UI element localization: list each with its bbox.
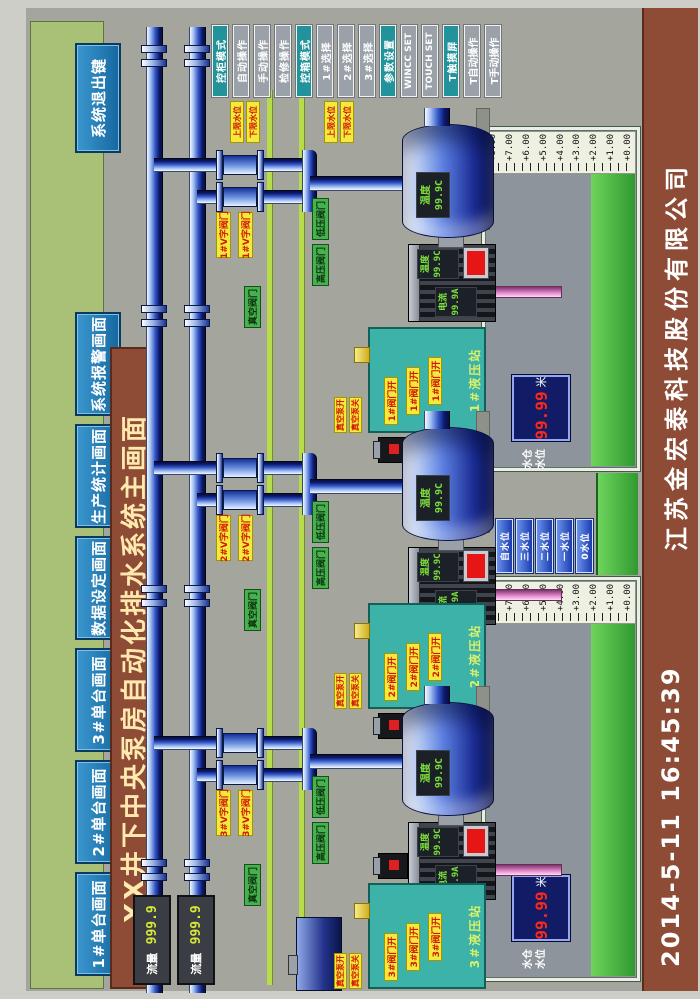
pump-inlet-pipe (310, 176, 410, 191)
pipe-flange (184, 859, 210, 867)
tank-level-display-right: 99.99米 (512, 375, 570, 441)
suction-pipe (490, 286, 562, 298)
nav-bar: 1#单台画面 2#单台画面 3#单台画面 数据设定画面 生产统计画面 系统报警画… (30, 21, 104, 989)
scale-tick-label: +2.00 (590, 583, 599, 611)
valve-label: 高压阀门 (312, 547, 329, 589)
valve-flange (257, 760, 264, 790)
station-title: 3#液压站 (466, 885, 483, 987)
valve-label: 真空阀门 (244, 864, 261, 906)
tank-channel (596, 473, 638, 575)
scale-tick-label: +3.00 (573, 133, 582, 161)
valve-flange (257, 728, 264, 758)
level-scale: +8.00+7.00+6.00+5.00+4.00+3.00+2.00+1.00… (487, 132, 635, 174)
suction-pipe (490, 864, 562, 876)
scale-tick-label: +4.00 (557, 133, 566, 161)
valve-body (223, 490, 257, 510)
motor-temp-gauge: 温度99.9C (417, 249, 459, 279)
valve-body (223, 765, 257, 785)
station-side-tag: 真空泵关 (349, 397, 362, 433)
pipe-flange (141, 585, 167, 593)
hydraulic-station-panel: 3#阀门开 3#阀门开 3#阀门开 3#液压站 (368, 883, 486, 989)
valve-flange (216, 728, 223, 758)
pipe-flange (184, 585, 210, 593)
motor-temp-gauge: 温度99.9C (417, 552, 459, 582)
valve-flange (216, 485, 223, 515)
level-button[interactable]: 自水位 (496, 519, 513, 573)
tank-level-display-left: 99.99米 (512, 875, 570, 941)
motor-temp-gauge: 温度99.9C (417, 827, 459, 857)
alarm-level-tag: 上限水位 (324, 101, 338, 143)
motor-alarm-indicator (463, 550, 489, 582)
level-button[interactable]: 三水位 (516, 519, 533, 573)
tank-level-caption: 水仓水位 (522, 943, 548, 969)
mode-button[interactable]: TOUCH SET (422, 25, 438, 97)
pump-outlet-stub (424, 686, 450, 704)
valve-label: 高压阀门 (312, 244, 329, 286)
valve-flange (257, 150, 264, 180)
level-button[interactable]: 二水位 (536, 519, 553, 573)
flow-value: 999.9 (145, 905, 160, 944)
pipe-flange (141, 599, 167, 607)
pipe-flange (141, 859, 167, 867)
pump-inlet-pipe (310, 479, 410, 494)
pipe-flange (184, 873, 210, 881)
pipe-flange (141, 873, 167, 881)
motor: 电流99.9A 温度99.9C (408, 244, 496, 322)
valve-tag: 2#V字阀门 (238, 515, 253, 561)
station-side-tag: 真空泵开 (334, 673, 347, 709)
tank-level-caption: 水仓水位 (522, 443, 548, 469)
station-side-tag: 真空泵开 (334, 397, 347, 433)
valve-flange (216, 760, 223, 790)
flow-label: 流量 (144, 953, 160, 975)
valve-flange (216, 182, 223, 212)
level-value: 99.99 (532, 391, 551, 439)
station-valve-tag: 2#阀门开 (406, 643, 420, 691)
pump-inlet-pipe (310, 754, 410, 769)
alarm-level-tag: 下限水位 (340, 101, 354, 143)
datetime-display: 2014-5-11 16:45:39 (657, 666, 685, 967)
level-button[interactable]: 一水位 (556, 519, 573, 573)
station-valve-tag: 1#阀门开 (428, 357, 442, 405)
panel-pipe-stub (354, 623, 370, 639)
mode-button[interactable]: T自动操作 (464, 25, 480, 97)
station-valve-tag: 1#阀门开 (406, 367, 420, 415)
pump-outlet-stub (424, 108, 450, 126)
scale-tick-label: +5.00 (540, 133, 549, 161)
suction-pipe (490, 589, 562, 601)
valve-label: 低压阀门 (312, 198, 329, 240)
scale-tick-label: +2.00 (590, 133, 599, 161)
water-level-fill (591, 582, 635, 976)
level-unit: 米 (533, 876, 549, 887)
mode-button[interactable]: 检修操作 (275, 25, 291, 97)
valve-label: 低压阀门 (312, 501, 329, 543)
water-level-fill (591, 132, 635, 466)
pipe-flange (184, 599, 210, 607)
valve-label: 低压阀门 (312, 776, 329, 818)
pipe-flange (184, 319, 210, 327)
station-valve-tag: 1#阀门开 (384, 377, 398, 425)
auxiliary-pump-cap (288, 955, 298, 975)
valve-flange (257, 453, 264, 483)
pipe-flange (184, 45, 210, 53)
flow-meter-1: 流量999.9 (133, 895, 171, 985)
mode-button[interactable]: 控箱模式 (296, 25, 312, 97)
signal-line (267, 90, 272, 985)
flow-value: 999.9 (189, 905, 204, 944)
valve-tag: 3#V字阀门 (238, 790, 253, 836)
valve-body (223, 458, 257, 478)
pipe-flange (141, 305, 167, 313)
station-side-tag: 真空泵关 (349, 953, 362, 989)
mode-button[interactable]: T触摸屏 (443, 25, 459, 97)
mode-button[interactable]: T手动操作 (485, 25, 501, 97)
signal-line (299, 90, 304, 985)
hmi-screen: 1#单台画面 2#单台画面 3#单台画面 数据设定画面 生产统计画面 系统报警画… (0, 0, 700, 999)
panel-pipe-stub (354, 347, 370, 363)
station-valve-tag: 2#阀门开 (428, 633, 442, 681)
pump-outlet-stub (424, 411, 450, 429)
mode-button[interactable]: 自动操作 (233, 25, 249, 97)
station-valve-tag: 3#阀门开 (406, 923, 420, 971)
level-unit: 米 (533, 376, 549, 387)
valve-flange (257, 485, 264, 515)
scale-tick-label: +0.00 (624, 583, 633, 611)
level-button[interactable]: 0水位 (576, 519, 593, 573)
mode-button[interactable]: 1#选择 (317, 25, 333, 97)
valve-flange (257, 182, 264, 212)
pipe-flange (184, 59, 210, 67)
mode-button[interactable]: 3#选择 (359, 25, 375, 97)
valve-body (223, 187, 257, 207)
scale-tick-label: +7.00 (506, 133, 515, 161)
mode-button[interactable]: 参数设置 (380, 25, 396, 97)
scale-tick-label: +6.00 (523, 133, 532, 161)
valve-label: 高压阀门 (312, 822, 329, 864)
pump-temp-gauge: 温度99.9C (416, 172, 450, 218)
pipe-flange (184, 305, 210, 313)
motor-alarm-indicator (463, 247, 489, 279)
pipe-flange (141, 45, 167, 53)
level-value: 99.99 (532, 891, 551, 939)
valve-tag: 2#V字阀门 (216, 515, 231, 561)
vacuum-pump (378, 853, 408, 879)
valve-flange (216, 150, 223, 180)
valve-flange (216, 453, 223, 483)
valve-label: 真空阀门 (244, 286, 261, 328)
scale-tick-label: +1.00 (607, 583, 616, 611)
motor-current-gauge: 电流99.9A (435, 287, 477, 317)
mode-button[interactable]: 控柜模式 (212, 25, 228, 97)
valve-tag: 1#V字阀门 (238, 212, 253, 258)
company-name: 江苏金宏泰科技股份有限公司 (657, 161, 692, 551)
system-exit-button[interactable]: 系统退出键 (75, 43, 121, 153)
scale-tick-label: +3.00 (573, 583, 582, 611)
flow-meter-2: 流量999.9 (177, 895, 215, 985)
valve-label: 真空阀门 (244, 589, 261, 631)
valve-tag: 1#V字阀门 (216, 212, 231, 258)
station-valve-tag: 2#阀门开 (384, 653, 398, 701)
mode-button[interactable]: 2#选择 (338, 25, 354, 97)
valve-tag: 3#V字阀门 (216, 790, 231, 836)
motor-alarm-indicator (463, 825, 489, 857)
station-valve-tag: 3#阀门开 (384, 933, 398, 981)
pump-temp-gauge: 温度99.9C (416, 475, 450, 521)
mode-button[interactable]: 手动操作 (254, 25, 270, 97)
alarm-level-tag: 下限水位 (246, 101, 260, 143)
panel-pipe-stub (354, 903, 370, 919)
pump-temp-gauge: 温度99.9C (416, 750, 450, 796)
status-bar: 2014-5-11 16:45:39 江苏金宏泰科技股份有限公司 (642, 8, 698, 991)
station-valve-tag: 3#阀门开 (428, 913, 442, 961)
mode-button[interactable]: WINCC SET (401, 25, 417, 97)
pipe-flange (141, 319, 167, 327)
scale-tick-label: +0.00 (624, 133, 633, 161)
valve-body (223, 155, 257, 175)
flow-label: 流量 (188, 953, 204, 975)
station-side-tag: 真空泵开 (334, 953, 347, 989)
station-side-tag: 真空泵关 (349, 673, 362, 709)
valve-body (223, 733, 257, 753)
pipe-flange (141, 59, 167, 67)
alarm-level-tag: 上限水位 (230, 101, 244, 143)
scale-tick-label: +1.00 (607, 133, 616, 161)
